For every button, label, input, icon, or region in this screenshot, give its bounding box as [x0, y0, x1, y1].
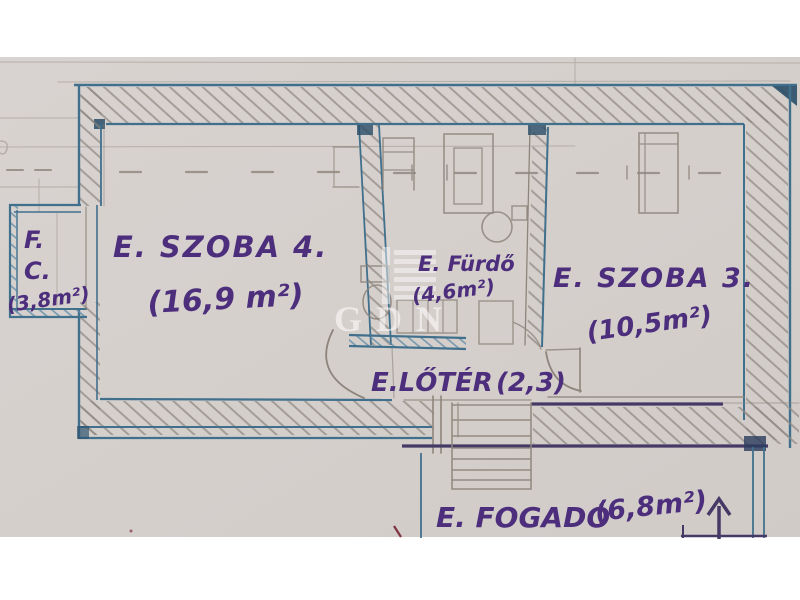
- room-label-eloter: E.LŐTÉR: [371, 366, 493, 398]
- room-label-furdo: E. Fürdő: [418, 252, 515, 276]
- room-label-szoba3: E. SZOBA 3.: [553, 263, 755, 294]
- top-wall: [58, 81, 797, 129]
- room-label-fc-line2: C.: [24, 257, 51, 285]
- screenshot-root: GDN F. C. (3,8m²) E. SZOBA 4. (16,9 m²) …: [0, 0, 800, 600]
- room-label-fc-line1: F.: [24, 226, 44, 254]
- room-label-szoba4: E. SZOBA 4.: [113, 230, 328, 264]
- floor-plan-photo: GDN F. C. (3,8m²) E. SZOBA 4. (16,9 m²) …: [0, 0, 800, 600]
- room-area-eloter: (2,3): [496, 368, 566, 398]
- room-label-fogado: E. FOGADÓ: [436, 500, 610, 534]
